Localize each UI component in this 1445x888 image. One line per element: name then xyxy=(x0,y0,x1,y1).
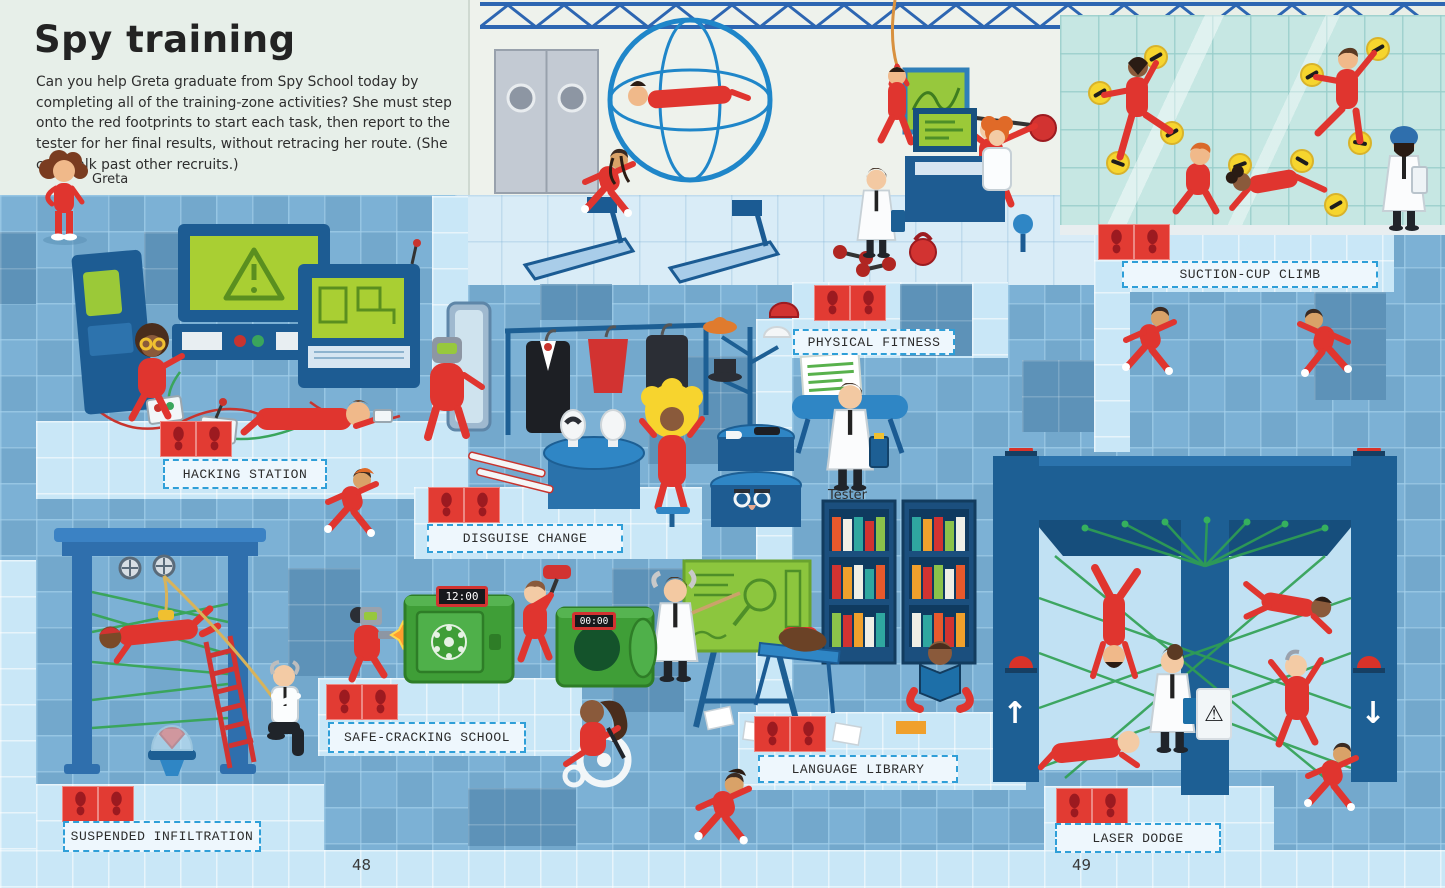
station-label-laser: LASER DODGE xyxy=(1055,823,1221,853)
footprint-icon xyxy=(1056,788,1092,824)
safe-timer: 12:00 xyxy=(436,586,488,607)
monitoring-console xyxy=(905,108,1033,252)
safe-timer: 00:00 xyxy=(572,612,616,630)
footprint-icon xyxy=(98,786,134,822)
greta-name-label: Greta xyxy=(92,172,128,187)
footprint-icon xyxy=(1098,224,1134,260)
books-icon xyxy=(912,517,965,647)
book-page: Spy training Can you help Greta graduate… xyxy=(0,0,1445,888)
suspended-infiltration-scene xyxy=(52,522,322,792)
tester-scene xyxy=(790,355,915,505)
footprint-icon xyxy=(1134,224,1170,260)
station-label-suspended: SUSPENDED INFILTRATION xyxy=(63,821,261,852)
hacking-station-scene xyxy=(60,212,430,452)
kettlebell-icon xyxy=(910,234,936,265)
books-icon xyxy=(832,517,885,647)
up-arrow-icon: ↑ xyxy=(1000,690,1030,736)
gem-pedestal xyxy=(148,726,196,776)
footprints-fitness xyxy=(814,285,886,321)
footprint-icon xyxy=(160,421,196,457)
spinning-recruit-figure xyxy=(628,81,748,109)
warning-icon: ⚠ xyxy=(1196,688,1232,740)
bookcase xyxy=(823,501,895,663)
treadmill xyxy=(525,197,633,279)
down-arrow-icon: ↓ xyxy=(1358,690,1388,736)
footprint-icon xyxy=(1092,788,1128,824)
harness-clip xyxy=(158,610,174,620)
lying-recruit-figure xyxy=(244,400,392,432)
footprint-icon xyxy=(850,285,886,321)
running-recruit-figure xyxy=(1290,730,1370,825)
station-label-fitness: PHYSICAL FITNESS xyxy=(793,329,955,355)
running-recruit-figure xyxy=(680,762,760,854)
page-number-left: 48 xyxy=(352,856,371,874)
bookcase xyxy=(903,501,975,663)
suction-cup-climb-scene xyxy=(1060,15,1445,237)
footprints-disguise xyxy=(428,487,500,523)
footprint-icon xyxy=(428,487,464,523)
climber-figure xyxy=(1104,57,1170,157)
footprint-icon xyxy=(790,716,826,752)
maze-path xyxy=(0,850,1445,888)
footprint-icon xyxy=(62,786,98,822)
welder-recruit-figure xyxy=(350,607,404,679)
footprint-icon xyxy=(196,421,232,457)
footprint-icon xyxy=(362,684,398,720)
examiner-figure xyxy=(858,168,906,258)
greta-figure xyxy=(30,150,100,245)
tester-name-label: Tester xyxy=(828,488,867,503)
footprints-library xyxy=(754,716,826,752)
station-label-hacking: HACKING STATION xyxy=(163,459,327,489)
doctor-tester-figure xyxy=(1383,126,1427,231)
double-door xyxy=(495,50,598,193)
footprints-safe xyxy=(326,684,398,720)
footprint-icon xyxy=(464,487,500,523)
footprints-suspended xyxy=(62,786,134,822)
page-title: Spy training xyxy=(34,18,296,61)
treadmill xyxy=(670,200,778,282)
footprints-hacking xyxy=(160,421,232,457)
station-label-safe: SAFE-CRACKING SCHOOL xyxy=(328,722,526,753)
wheelchair-recruit-figure xyxy=(552,688,647,788)
maze-wall xyxy=(468,788,576,846)
safe-closed xyxy=(405,596,513,682)
kneeling-recruit-figure xyxy=(1176,143,1216,211)
dumbbells-icon xyxy=(833,245,896,277)
gyro-wheel xyxy=(610,20,770,180)
maze-wall xyxy=(1022,360,1094,432)
station-label-library: LANGUAGE LIBRARY xyxy=(758,755,958,783)
station-label-suction: SUCTION-CUP CLIMB xyxy=(1122,261,1378,288)
maze-path xyxy=(0,560,36,850)
footprint-icon xyxy=(326,684,362,720)
running-recruit-figure xyxy=(1108,296,1188,388)
footprints-suction xyxy=(1098,224,1170,260)
footprint-icon xyxy=(814,285,850,321)
rope xyxy=(164,576,167,610)
page-number-right: 49 xyxy=(1072,856,1091,874)
language-library-scene xyxy=(648,495,993,753)
footprint-icon xyxy=(754,716,790,752)
pulley-wheels xyxy=(120,556,174,578)
footprints-laser xyxy=(1056,788,1128,824)
climber-figure xyxy=(1316,48,1374,141)
station-label-disguise: DISGUISE CHANGE xyxy=(427,524,623,553)
physical-fitness-scene xyxy=(455,0,1110,285)
running-recruit-figure xyxy=(1286,298,1366,390)
